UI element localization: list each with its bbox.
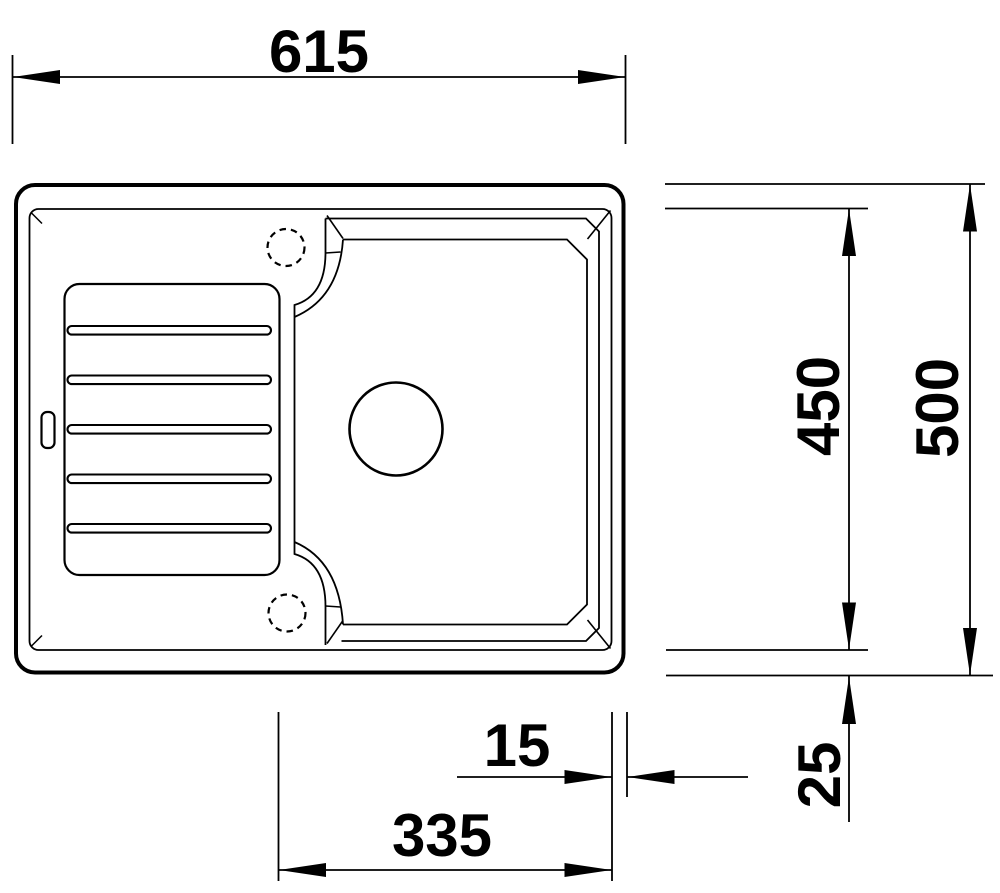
- bowl-transition-curve-bottom: [295, 542, 344, 625]
- technical-drawing-canvas: 615 450 500 25 15 335: [0, 0, 1000, 893]
- drainboard-ribs: [68, 326, 272, 533]
- arrowhead-down: [842, 603, 856, 650]
- arrowhead-right: [578, 70, 625, 84]
- arrowhead-left: [628, 770, 675, 784]
- arrowhead-up: [842, 209, 856, 256]
- arrowhead-left: [13, 70, 60, 84]
- dim-label-bowl-width: 335: [392, 802, 492, 869]
- sink-dimension-drawing: 615 450 500 25 15 335: [0, 0, 1000, 893]
- drainboard-rib: [68, 524, 272, 533]
- arrowhead-up: [842, 677, 856, 724]
- rim-corner-tick-bottom-left: [31, 636, 42, 647]
- tap-hole-top: [268, 229, 305, 266]
- sink-outer-edge: [16, 185, 624, 673]
- sink-body: [16, 185, 624, 673]
- dim-label-overall-width: 615: [269, 18, 369, 85]
- rim-corner-tick-top-left: [31, 213, 42, 224]
- bowl-transition-chamfer-bottom: [327, 621, 343, 644]
- drain-hole: [350, 383, 443, 476]
- dim-label-overall-depth: 500: [904, 358, 971, 458]
- drainboard: [65, 284, 280, 575]
- arrowhead-right: [565, 770, 612, 784]
- dimension-labels: 615 450 500 25 15 335: [269, 18, 971, 869]
- arrowhead-down: [963, 628, 977, 675]
- rim-notch: [42, 412, 55, 448]
- bowl-outer-wall: [326, 219, 600, 642]
- dim-label-edge-offset: 25: [786, 742, 853, 809]
- drainboard-rib: [68, 326, 272, 335]
- drainboard-inner-edge: [295, 219, 326, 646]
- bowl-transition-curve-top: [295, 240, 344, 318]
- bowl-transition-tick-top: [326, 252, 341, 253]
- drainboard-rib: [68, 425, 272, 434]
- arrowhead-up: [963, 185, 977, 232]
- drainboard-rib: [68, 376, 272, 385]
- sink-rim-inner-edge: [30, 209, 612, 650]
- arrowhead-left: [279, 863, 326, 877]
- arrowhead-right: [565, 863, 612, 877]
- dim-label-inner-depth: 450: [785, 356, 852, 456]
- bowl-floor-edge: [343, 240, 587, 625]
- dim-label-rim-width: 15: [484, 712, 551, 779]
- tap-hole-bottom: [269, 595, 306, 632]
- drainboard-rib: [68, 475, 272, 484]
- bowl-transition-tick-bottom: [326, 606, 341, 607]
